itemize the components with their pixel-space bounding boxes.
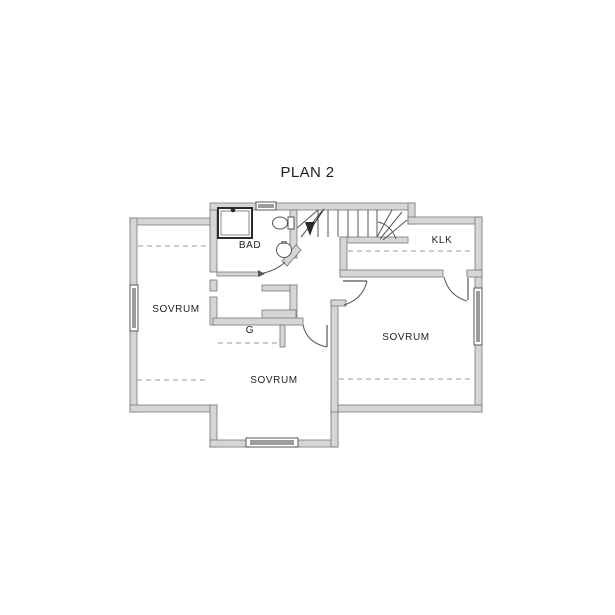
door-jamb-tick [258,270,265,277]
wall [331,405,482,412]
wall [331,300,338,412]
wall [340,270,443,277]
floor-plan-svg: BADKLKSOVRUMSOVRUMSOVRUMG [0,0,615,615]
room-label-garderob: G [246,325,254,336]
stair-direction-arrow [305,222,315,236]
wall [213,318,303,325]
room-label-sovrum-center: SOVRUM [250,375,298,386]
wall [331,300,346,306]
door-swing-arc [303,325,327,347]
room-label-klk: KLK [432,235,453,246]
wall [210,280,217,291]
toilet-tank [288,217,294,229]
toilet-bowl [273,217,288,229]
window-left-band [132,288,136,328]
wall [130,405,217,412]
room-label-bad: BAD [239,240,261,251]
sink-basin [277,243,292,258]
door-swing-arc [344,281,367,305]
wall [408,217,482,224]
walls-layer [130,203,482,447]
shower [218,208,252,238]
wall [210,210,217,272]
window-bay-band [250,440,294,445]
wall [467,270,482,277]
wall [280,325,285,347]
wall [340,237,408,243]
sink-tap [281,241,287,244]
door-swing-arc [259,262,285,274]
wall [217,272,259,276]
wall [130,218,217,225]
window-right-band [476,291,480,342]
door-swing-arc [444,277,467,301]
stairs [297,209,407,240]
room-labels: BADKLKSOVRUMSOVRUMSOVRUMG [152,235,452,386]
floor-plan-page: PLAN 2 BADKLKSOVRUMSOVRUMSOVRUMG [0,0,615,615]
window-top-band [258,204,274,208]
shower-head [231,208,236,213]
room-label-sovrum-right: SOVRUM [382,332,430,343]
room-label-sovrum-left: SOVRUM [152,304,200,315]
